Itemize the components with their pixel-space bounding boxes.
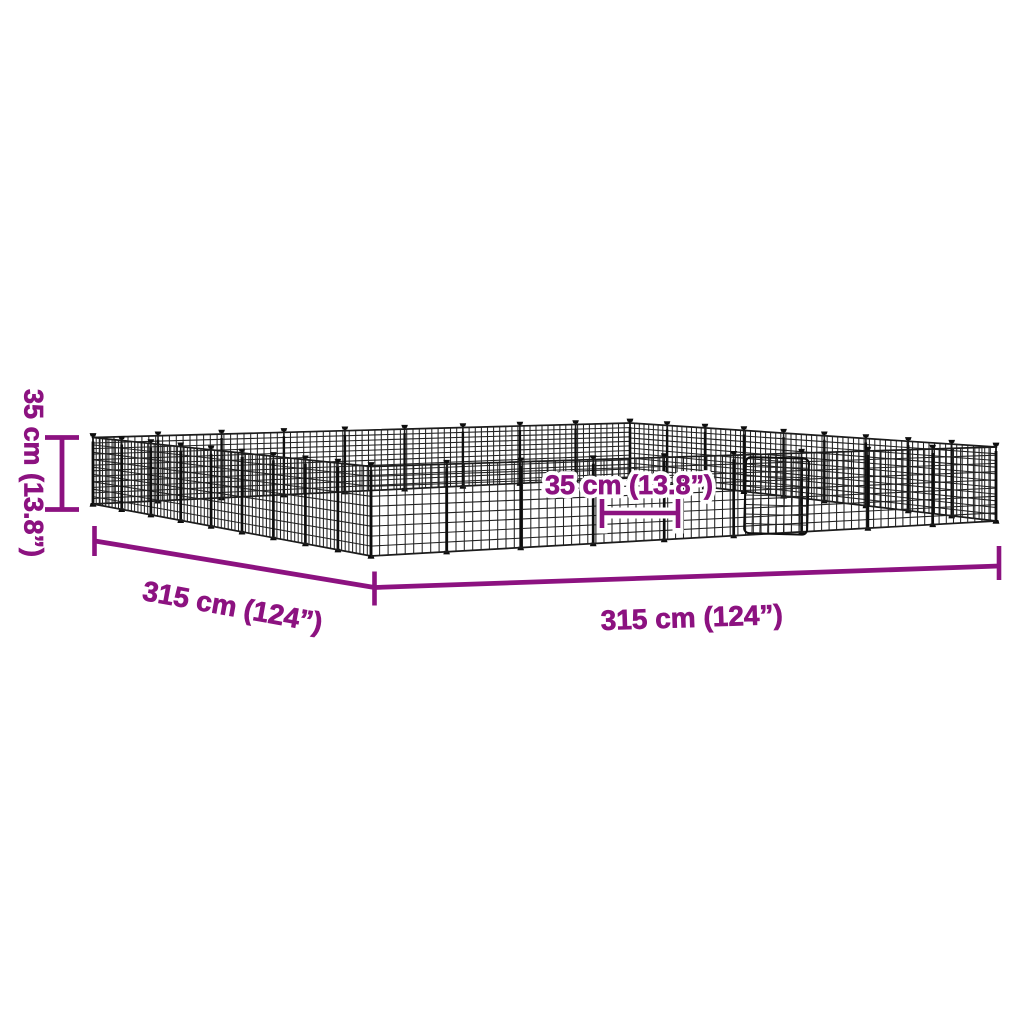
svg-text:35 cm (13.8”): 35 cm (13.8”): [19, 389, 49, 557]
svg-text:35 cm (13.8”): 35 cm (13.8”): [545, 470, 713, 500]
svg-text:315 cm (124”): 315 cm (124”): [600, 599, 783, 636]
